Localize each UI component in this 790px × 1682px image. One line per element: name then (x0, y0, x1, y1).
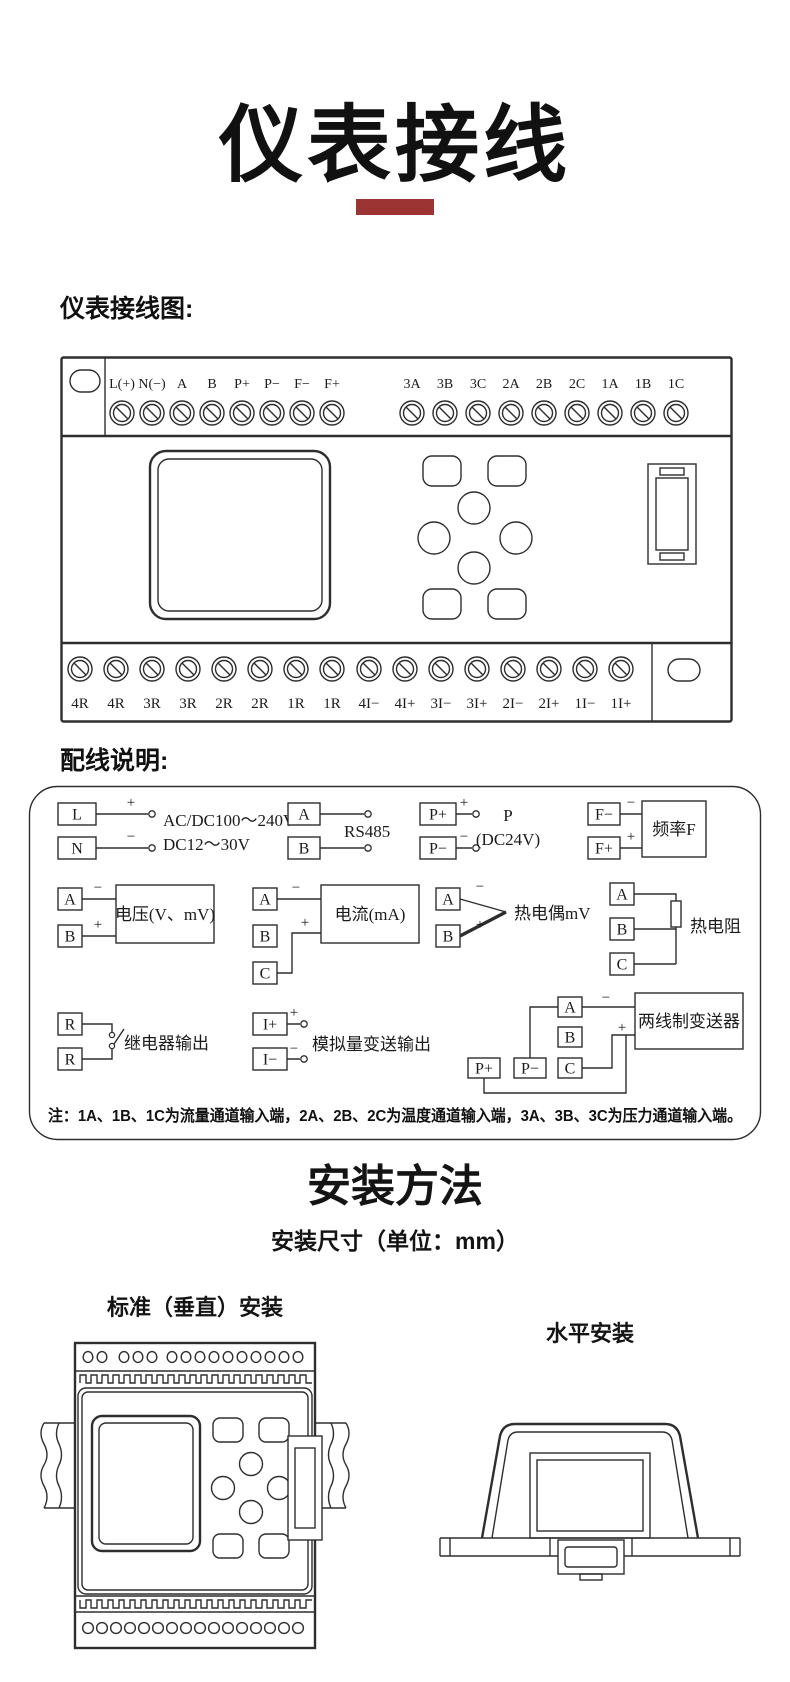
terminal-hole (251, 1352, 261, 1363)
lcd-display-small (92, 1416, 200, 1551)
terminal-hole (147, 1352, 157, 1363)
top-terminal-label: N(−) (138, 377, 166, 392)
screw-terminal (176, 657, 200, 681)
terminal-label: A (616, 887, 628, 904)
screw-terminal (290, 401, 314, 425)
device-front-outline (75, 1343, 315, 1648)
screw-terminal (320, 657, 344, 681)
wiring-notes-panel: LN+−AC/DC100～240VDC12～30V ABRS485 P+P−+−… (28, 785, 762, 1142)
terminal-label: R (65, 1017, 76, 1034)
terminal-label: R (65, 1052, 76, 1069)
relay-output-wiring: RR继电器输出 (58, 1013, 209, 1070)
terminal-label: C (260, 966, 271, 983)
screw-terminal (393, 657, 417, 681)
key-down (458, 552, 490, 584)
top-terminal-label: F− (294, 377, 310, 392)
terminal-hole (167, 1352, 177, 1363)
polarity-sign: − (627, 795, 635, 811)
top-terminal-label: 3B (437, 377, 453, 392)
device-profile (440, 1424, 740, 1556)
screw-terminal (466, 401, 490, 425)
wiring-label: 模拟量变送输出 (312, 1035, 431, 1054)
two-wire-transmitter-wiring: ABCP+P−两线制变送器−+ (468, 990, 743, 1093)
bottom-terminal-label: 2R (251, 696, 269, 712)
top-terminal-label: F+ (324, 377, 340, 392)
terminal-label: A (298, 807, 310, 824)
rs485-wiring: ABRS485 (288, 803, 390, 859)
bottom-terminal-label: 1I+ (611, 696, 632, 712)
terminal-label: I− (263, 1052, 277, 1069)
top-terminal-label: B (207, 377, 216, 392)
resistor-symbol (671, 901, 681, 927)
terminal-hole (209, 1623, 220, 1634)
wiring-label: RS485 (344, 822, 390, 841)
screw-terminal (140, 401, 164, 425)
bottom-terminal-label: 4R (71, 696, 89, 712)
top-terminal-label: L(+) (109, 377, 135, 392)
terminal-hole (125, 1623, 136, 1634)
screw-terminal (573, 657, 597, 681)
bottom-terminal-label: 3R (143, 696, 161, 712)
terminal-hole (133, 1352, 143, 1363)
bottom-terminal-label: 1R (287, 696, 305, 712)
top-terminal-label: 1C (668, 377, 684, 392)
side-connector (648, 464, 696, 564)
key-top-right (488, 456, 526, 486)
polarity-sign: − (290, 1041, 298, 1057)
screw-terminal (400, 401, 424, 425)
top-terminal-label: P+ (234, 377, 250, 392)
keypad-small (212, 1418, 291, 1558)
terminal-label: N (71, 841, 83, 858)
terminal-label: I+ (263, 1017, 277, 1034)
terminal-hole (279, 1623, 290, 1634)
bottom-terminal-label: 4I+ (395, 696, 416, 712)
bottom-terminal-label: 1R (323, 696, 341, 712)
top-terminal-label: 2B (536, 377, 552, 392)
aux-power-wiring: P+P−+−P(DC24V) (420, 795, 540, 859)
screw-terminal (140, 657, 164, 681)
bottom-terminal-holes (83, 1623, 304, 1634)
top-terminal-label: 2C (569, 377, 585, 392)
screw-terminal (598, 401, 622, 425)
component-label: 电压(V、mV) (115, 905, 215, 924)
bottom-terminal-label: 3I+ (467, 696, 488, 712)
bottom-terminal-label: 3I− (431, 696, 452, 712)
component-label: 两线制变送器 (638, 1012, 740, 1031)
terminal-label: F− (595, 807, 613, 824)
terminal-label: B (565, 1030, 576, 1047)
bottom-terminal-strip: 4R4R3R3R2R2R1R1R4I−4I+3I−3I+2I−2I+1I−1I+ (68, 657, 633, 712)
title-accent-bar (356, 199, 434, 215)
terminal-hole (293, 1352, 303, 1363)
screw-terminal (429, 657, 453, 681)
rail-clip (550, 1538, 632, 1580)
wiring-label: (DC24V) (476, 830, 540, 849)
mounting-slot-top (70, 370, 100, 392)
component-label: 电流(mA) (335, 905, 406, 924)
key-top-left (423, 456, 461, 486)
key-right (500, 522, 532, 554)
current-input-wiring: ABC电流(mA)−+ (253, 880, 419, 984)
top-terminal-label: 3A (403, 377, 421, 392)
mounting-slot-bottom (668, 659, 700, 681)
terminal-hole (223, 1352, 233, 1363)
screw-terminal (104, 657, 128, 681)
polarity-sign: − (127, 829, 135, 845)
instrument-wiring-diagram: L(+)N(−)ABP+P−F−F+3A3B3C2A2B2C1A1B1C (60, 356, 733, 723)
terminal-label: C (565, 1061, 576, 1078)
vent-slots-bottom (80, 1600, 312, 1608)
top-terminal-holes (83, 1352, 303, 1363)
terminal-label: L (72, 807, 82, 824)
top-terminal-label: 2A (502, 377, 520, 392)
polarity-sign: − (602, 990, 610, 1006)
screw-terminal (284, 657, 308, 681)
key-bottom-left (423, 589, 461, 619)
vertical-install-figure (30, 1338, 360, 1658)
lcd-display (150, 451, 330, 619)
screw-terminal (532, 401, 556, 425)
component-label: 频率F (652, 820, 695, 839)
rtd-input-wiring: ABC热电阻 (610, 883, 741, 975)
horizontal-install-label: 水平安装 (430, 1316, 750, 1348)
terminal-label: B (65, 929, 76, 946)
power-supply-wiring: LN+−AC/DC100～240VDC12～30V (58, 795, 296, 859)
terminal-label: F+ (595, 841, 613, 858)
wiring-label: DC12～30V (163, 835, 251, 854)
polarity-sign: + (618, 1020, 626, 1036)
polarity-sign: − (292, 880, 300, 896)
screw-terminal (357, 657, 381, 681)
polarity-sign: + (301, 915, 309, 931)
terminal-hole (83, 1352, 93, 1363)
top-terminal-label: 3C (470, 377, 486, 392)
bottom-terminal-label: 2I− (503, 696, 524, 712)
wiring-label: 热电阻 (690, 917, 741, 936)
wiring-label: 热电偶mV (514, 904, 591, 923)
terminal-label: C (617, 957, 628, 974)
screw-terminal (631, 401, 655, 425)
screw-terminal (212, 657, 236, 681)
vent-slots-top (80, 1375, 312, 1383)
terminal-label: P+ (475, 1061, 493, 1078)
polarity-sign: + (127, 795, 135, 811)
vertical-install-label: 标准（垂直）安装 (30, 1290, 360, 1322)
terminal-hole (111, 1623, 122, 1634)
channel-note: 注：1A、1B、1C为流量通道输入端，2A、2B、2C为温度通道输入端，3A、3… (48, 1106, 742, 1125)
terminal-label: A (259, 892, 271, 909)
terminal-label: P− (429, 841, 447, 858)
terminal-label: B (617, 922, 628, 939)
terminal-hole (153, 1623, 164, 1634)
bottom-terminal-label: 3R (179, 696, 197, 712)
terminal-label: B (299, 841, 310, 858)
screw-terminal (320, 401, 344, 425)
top-terminal-label: A (177, 377, 188, 392)
wiring-label: P (503, 806, 512, 825)
top-terminal-strip: L(+)N(−)ABP+P−F−F+3A3B3C2A2B2C1A1B1C (109, 377, 688, 425)
wiring-notes-heading: 配线说明: (60, 741, 168, 777)
terminal-hole (139, 1623, 150, 1634)
horizontal-install-figure (430, 1388, 750, 1588)
screw-terminal (68, 657, 92, 681)
thermocouple-input-wiring: AB−+热电偶mV (436, 879, 591, 947)
screw-terminal (248, 657, 272, 681)
bottom-terminal-label: 2I+ (539, 696, 560, 712)
screw-terminal (664, 401, 688, 425)
wiring-diagram-heading: 仪表接线图: (60, 289, 193, 325)
terminal-hole (237, 1352, 247, 1363)
polarity-sign: + (460, 795, 468, 811)
polarity-sign: − (94, 880, 102, 896)
terminal-label: A (564, 1000, 576, 1017)
page-title: 仪表接线 (0, 78, 790, 199)
terminal-hole (97, 1623, 108, 1634)
polarity-sign: + (627, 829, 635, 845)
terminal-hole (209, 1352, 219, 1363)
install-subheading: 安装尺寸（单位：mm） (0, 1222, 790, 1256)
terminal-hole (181, 1352, 191, 1363)
terminal-hole (265, 1623, 276, 1634)
polarity-sign: − (476, 879, 484, 895)
screw-terminal (170, 401, 194, 425)
terminal-label: A (442, 892, 454, 909)
install-heading: 安装方法 (0, 1150, 790, 1214)
keypad (418, 456, 532, 619)
wiring-label: 继电器输出 (124, 1034, 209, 1053)
terminal-hole (293, 1623, 304, 1634)
terminal-label: P− (521, 1061, 539, 1078)
terminal-label: A (64, 892, 76, 909)
screw-terminal (110, 401, 134, 425)
terminal-hole (195, 1623, 206, 1634)
polarity-sign: − (460, 829, 468, 845)
screw-terminal (499, 401, 523, 425)
front-panel (78, 1388, 312, 1594)
terminal-hole (83, 1623, 94, 1634)
terminal-hole (97, 1352, 107, 1363)
voltage-input-wiring: AB电压(V、mV)−+ (58, 880, 215, 947)
screw-terminal (433, 401, 457, 425)
screw-terminal (465, 657, 489, 681)
terminal-hole (237, 1623, 248, 1634)
analog-output-wiring: I+I−+−模拟量变送输出 (253, 1005, 431, 1070)
terminal-hole (265, 1352, 275, 1363)
screw-terminal (609, 657, 633, 681)
bottom-terminal-label: 2R (215, 696, 233, 712)
terminal-hole (119, 1352, 129, 1363)
terminal-hole (181, 1623, 192, 1634)
frequency-input-wiring: F−F+频率F−+ (588, 795, 706, 859)
bottom-terminal-label: 1I− (575, 696, 596, 712)
screw-terminal (565, 401, 589, 425)
key-up (458, 492, 490, 524)
top-terminal-label: 1B (635, 377, 651, 392)
polarity-sign: + (94, 917, 102, 933)
manual-page: 仪表接线 仪表接线图: L(+)N(−)ABP+P−F−F+3A3B3C2A2B… (0, 0, 790, 1682)
terminal-label: P+ (429, 807, 447, 824)
terminal-hole (167, 1623, 178, 1634)
bottom-terminal-label: 4R (107, 696, 125, 712)
screw-terminal (260, 401, 284, 425)
side-connector-small (288, 1436, 322, 1540)
polarity-sign: + (290, 1005, 298, 1021)
top-terminal-label: P− (264, 377, 280, 392)
key-left (418, 522, 450, 554)
din-rail-left (41, 1423, 75, 1508)
bottom-terminal-label: 4I− (359, 696, 380, 712)
screw-terminal (230, 401, 254, 425)
screw-terminal (200, 401, 224, 425)
screw-terminal (501, 657, 525, 681)
terminal-hole (195, 1352, 205, 1363)
key-bottom-right (488, 589, 526, 619)
terminal-label: B (443, 929, 454, 946)
terminal-hole (223, 1623, 234, 1634)
terminal-hole (279, 1352, 289, 1363)
terminal-hole (251, 1623, 262, 1634)
wiring-label: AC/DC100～240V (163, 811, 296, 830)
polarity-sign: + (476, 917, 484, 933)
terminal-label: B (260, 929, 271, 946)
top-terminal-label: 1A (601, 377, 619, 392)
screw-terminal (537, 657, 561, 681)
